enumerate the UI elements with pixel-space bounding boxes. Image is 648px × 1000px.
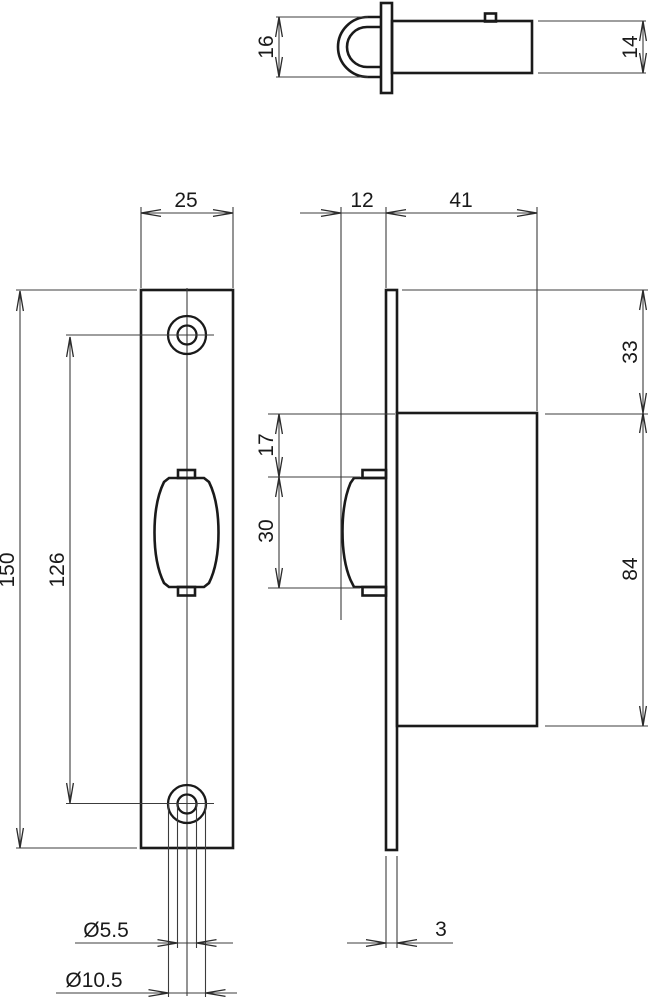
dim-label-25: 25 — [174, 189, 197, 212]
roller-side-outline — [343, 478, 387, 587]
dim-label-3: 3 — [435, 918, 447, 941]
dim-label-dia105: Ø10.5 — [65, 969, 122, 992]
roller-side-tab-bottom — [363, 587, 387, 596]
dim-label-33: 33 — [619, 340, 642, 363]
dim-label-150: 150 — [0, 552, 19, 587]
dim-label-dia55: Ø5.5 — [83, 919, 129, 942]
dim-label-16: 16 — [255, 35, 278, 58]
faceplate-side-outline — [386, 290, 397, 850]
dim-label-14: 14 — [619, 35, 642, 59]
technical-drawing: 16 14 — [0, 0, 648, 1000]
top-view: 16 14 — [255, 3, 646, 93]
dim-label-41: 41 — [449, 189, 472, 212]
dim-label-17: 17 — [255, 433, 278, 456]
roller-loop-inner — [347, 27, 381, 67]
dim-25-lines — [141, 207, 233, 288]
case-side-outline — [397, 413, 537, 726]
dim-150-lines — [16, 290, 137, 848]
dim-16-lines — [276, 17, 368, 77]
dim-label-84: 84 — [619, 557, 642, 581]
dim-label-126: 126 — [46, 552, 69, 587]
case-top-outline — [392, 21, 532, 73]
drawing-canvas: 16 14 — [0, 0, 648, 1000]
dim-33-84-lines — [402, 290, 648, 726]
faceplate-top-outline — [381, 3, 392, 93]
dim-17-30-lines — [268, 414, 395, 588]
side-view: 12 41 17 30 33 84 — [255, 189, 648, 948]
dim-label-30: 30 — [255, 519, 278, 542]
front-view: 25 150 126 Ø5.5 Ø10.5 — [0, 189, 237, 997]
dim-label-12: 12 — [350, 189, 373, 212]
